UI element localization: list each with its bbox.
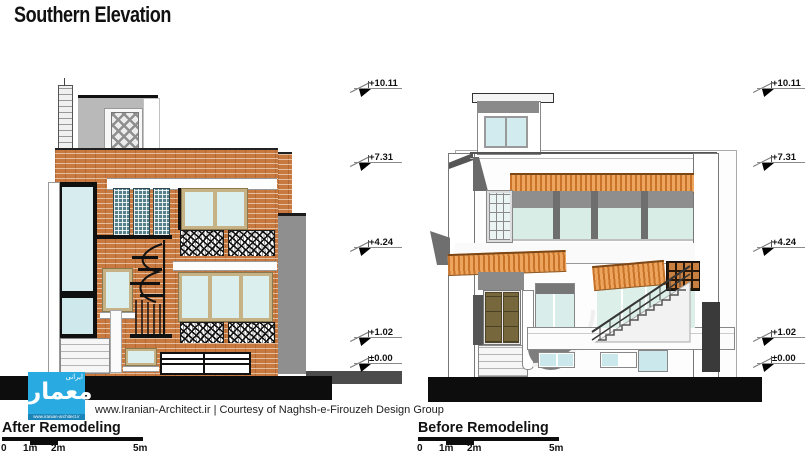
before-ground-plinth [428, 377, 762, 402]
roof-ladder [58, 85, 73, 150]
rail [162, 363, 249, 365]
marker-value: ±0.00 [772, 353, 796, 364]
awning-2f [510, 173, 694, 193]
left-pier [48, 182, 60, 378]
window-2f [181, 188, 248, 230]
level-marker-4-24: +4.24 [755, 234, 805, 258]
level-triangle-icon [359, 364, 371, 372]
basement-window-1 [538, 352, 575, 368]
level-marker-0-00: ±0.00 [755, 350, 805, 374]
window-transom [536, 284, 574, 294]
spiral-staircase [128, 238, 176, 340]
after-scale-bar [2, 437, 143, 441]
window-pane [620, 354, 636, 366]
basement-window-3 [638, 350, 668, 372]
after-side-wall [278, 213, 306, 374]
planter-1f-left [180, 322, 224, 343]
window-pane [540, 354, 556, 366]
before-roofline-2 [470, 158, 717, 159]
after-brick-parapet-right [278, 152, 292, 215]
roof-fascia [477, 101, 539, 113]
level-triangle-icon [762, 89, 774, 97]
marker-value: +10.11 [772, 78, 801, 89]
scale-tick: 1m [439, 443, 453, 454]
window-pane [602, 354, 618, 366]
door-leaf [503, 292, 520, 343]
door-header [478, 272, 524, 290]
level-triangle-icon [762, 248, 774, 256]
mullion [591, 191, 598, 239]
ground-window [125, 348, 157, 366]
basement-window-2 [600, 352, 637, 368]
tall-window-frame [58, 182, 97, 338]
window-pane [62, 298, 93, 334]
entrance-door [483, 290, 521, 345]
level-triangle-icon [359, 338, 371, 346]
marker-value: +4.24 [772, 237, 796, 248]
marker-value: ±0.00 [369, 353, 393, 364]
marker-value: +4.24 [369, 237, 393, 248]
penthouse-window [484, 116, 528, 148]
external-staircase [590, 256, 702, 344]
level-triangle-icon [359, 89, 371, 97]
after-label: After Remodeling [2, 419, 121, 436]
scale-tick: 0 [417, 443, 423, 454]
before-label: Before Remodeling [418, 419, 549, 436]
window-pane [128, 351, 154, 363]
window-pane [182, 276, 208, 318]
level-marker-10-11: +10.11 [352, 75, 402, 99]
logo-subtext: ایرانی [66, 373, 83, 381]
level-triangle-icon [359, 248, 371, 256]
level-marker-7-31: +7.31 [352, 149, 402, 173]
level-marker-7-31: +7.31 [755, 149, 805, 173]
mullion [641, 191, 648, 239]
entry-column [110, 310, 122, 373]
level-marker-10-11: +10.11 [755, 75, 805, 99]
scale-tick: 1m [23, 443, 37, 454]
planter-1f-right [228, 322, 275, 343]
door-side-shadow [473, 295, 483, 345]
door-leaf [485, 292, 502, 343]
marker-value: +7.31 [772, 152, 796, 163]
window-pane [212, 276, 238, 318]
page-title: Southern Elevation [14, 2, 171, 28]
window-pane [507, 118, 526, 146]
before-roofline [470, 152, 717, 154]
window-1f-main [178, 272, 273, 322]
marker-value: +10.11 [369, 78, 398, 89]
entrance-steps [478, 345, 528, 377]
window-pane [62, 187, 93, 291]
level-marker-4-24: +4.24 [352, 234, 402, 258]
before-scale-bar [418, 437, 559, 441]
planter-2f-right [228, 230, 275, 256]
credit-line[interactable]: www.Iranian-Architect.ir | Courtesy of N… [95, 404, 444, 416]
drawing-sheet: Southern Elevation www.Iranian-Architect… [0, 0, 810, 454]
planter-2f-left [180, 230, 224, 256]
entry-steps [60, 338, 110, 374]
lattice-screen [111, 112, 139, 150]
level-triangle-icon [762, 163, 774, 171]
scale-tick: 5m [133, 443, 147, 454]
level-triangle-icon [359, 163, 371, 171]
level-marker-0-00: ±0.00 [352, 350, 402, 374]
screened-window-1 [113, 188, 130, 236]
window-pane [243, 276, 269, 318]
garage-railing [160, 352, 251, 375]
after-fascia-band-1f [173, 261, 277, 271]
level-triangle-icon [762, 338, 774, 346]
dark-pillar [702, 302, 720, 372]
scale-tick: 2m [467, 443, 481, 454]
screened-window-2 [133, 188, 150, 236]
window-pane [185, 192, 213, 226]
tower-side-panel [143, 98, 160, 150]
transom-band-2f [512, 191, 693, 208]
roof-ladder-pole [64, 78, 65, 86]
rail [162, 358, 249, 360]
scale-tick: 5m [549, 443, 563, 454]
window-pane [106, 272, 129, 308]
window-sill [123, 366, 159, 372]
screened-window-3 [153, 188, 170, 236]
scale-tick: 0 [1, 443, 7, 454]
iranian-architect-logo[interactable]: معمار ایرانی www.iranian-architect.ir [28, 372, 85, 420]
marker-value: +1.02 [369, 327, 393, 338]
scale-tick: 2m [51, 443, 65, 454]
level-triangle-icon [762, 364, 774, 372]
marker-value: +1.02 [772, 327, 796, 338]
mullion [553, 191, 560, 239]
grid-window-2f [487, 191, 512, 242]
level-marker-1-02: +1.02 [352, 324, 402, 348]
level-marker-1-02: +1.02 [755, 324, 805, 348]
rail-post [203, 354, 205, 373]
glass-wall-2f [512, 208, 693, 241]
window-pane [217, 192, 245, 226]
window-pane [486, 118, 505, 146]
window-pane [558, 354, 574, 366]
marker-value: +7.31 [369, 152, 393, 163]
